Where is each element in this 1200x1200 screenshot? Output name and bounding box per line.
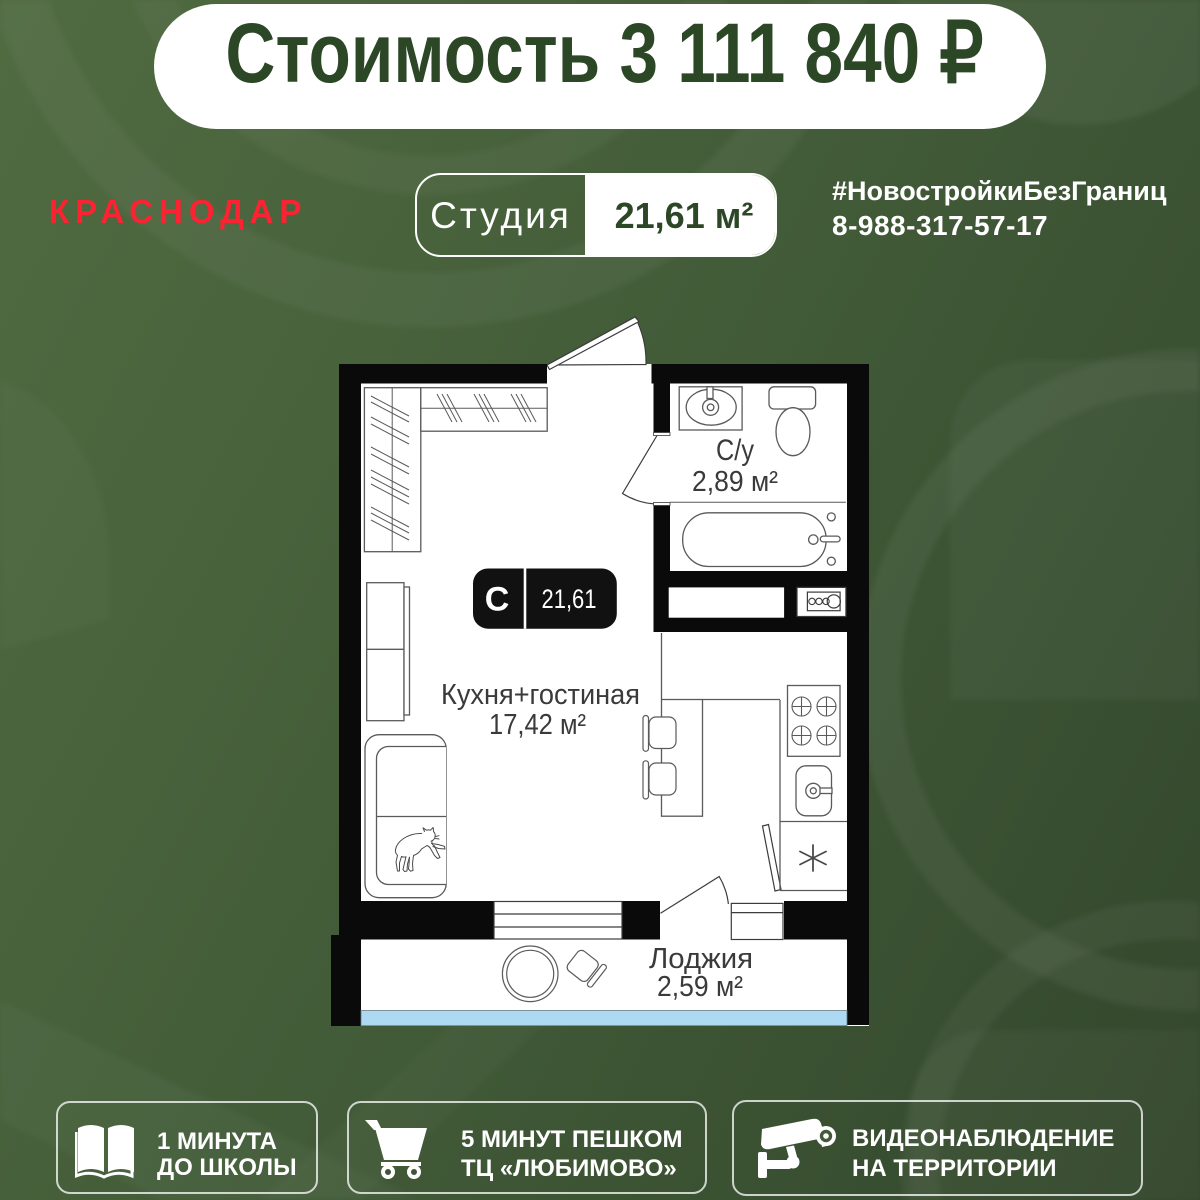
svg-text:2,89 м²: 2,89 м² (692, 466, 778, 498)
svg-text:Кухня+гостиная: Кухня+гостиная (441, 679, 640, 711)
svg-text:С/у: С/у (716, 434, 754, 467)
svg-text:17,42 м²: 17,42 м² (489, 709, 586, 741)
svg-text:21,61: 21,61 (542, 584, 597, 614)
svg-text:2,59 м²: 2,59 м² (657, 971, 743, 1003)
svg-text:С: С (485, 581, 510, 619)
